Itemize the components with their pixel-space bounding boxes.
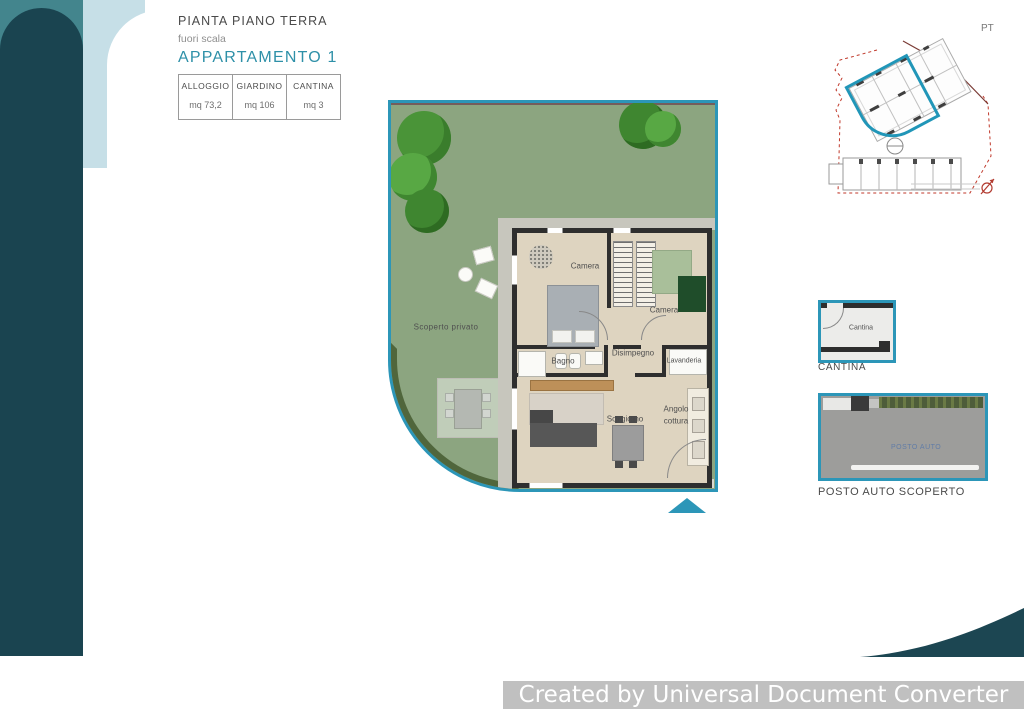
parking-line xyxy=(851,465,979,470)
cantina-door-swing xyxy=(823,308,844,329)
patio-left xyxy=(498,218,512,489)
col-header: CANTINA xyxy=(287,81,340,91)
cantina-caption: CANTINA xyxy=(818,362,866,373)
sink xyxy=(585,351,603,365)
room-label-angolo-cottura-2: cottura xyxy=(664,417,688,426)
apartment-title: APPARTAMENTO 1 xyxy=(178,49,338,67)
door-swing xyxy=(641,315,666,340)
hedge-strip xyxy=(879,397,983,408)
plan-top-boundary-line xyxy=(391,103,715,105)
cooktop xyxy=(692,397,705,411)
site-key-plan: PT xyxy=(815,8,1015,203)
interior-wall xyxy=(607,233,611,308)
window xyxy=(512,255,517,285)
main-floor-plan: Scoperto privato xyxy=(388,100,718,492)
lounge-chair xyxy=(472,246,494,265)
wardrobe xyxy=(613,241,633,307)
entry-door-swing xyxy=(667,439,706,478)
window xyxy=(547,228,563,233)
shower xyxy=(518,351,546,377)
cantina-plan: Cantina xyxy=(818,300,896,363)
table-col-giardino: GIARDINO mq 106 xyxy=(233,75,287,119)
window xyxy=(613,228,631,233)
north-compass-icon xyxy=(981,179,994,194)
room-label-camera-1: Camera xyxy=(571,262,599,271)
room-label-angolo-cottura-1: Angolo xyxy=(664,405,689,414)
area-summary-table: ALLOGGIO mq 73,2 GIARDINO mq 106 CANTINA… xyxy=(178,74,341,120)
cantina-wall xyxy=(821,347,887,352)
watermark-banner: Created by Universal Document Converter xyxy=(503,681,1024,709)
brochure-page: PIANTA PIANO TERRA fuori scala APPARTAME… xyxy=(0,0,1024,724)
room-label-soggiorno: Soggiorno xyxy=(607,415,643,424)
interior-wall xyxy=(635,373,665,377)
parking-caption: POSTO AUTO SCOPERTO xyxy=(818,486,965,498)
brand-bottom-swoosh xyxy=(800,598,1024,658)
round-rug xyxy=(529,245,553,269)
col-value: mq 3 xyxy=(287,100,340,110)
table-col-cantina: CANTINA mq 3 xyxy=(287,75,340,119)
curb xyxy=(869,399,879,408)
dining-chair xyxy=(629,461,637,468)
room-label-camera-2: Camera xyxy=(650,306,678,315)
dining-chair xyxy=(615,461,623,468)
garden-side-table xyxy=(458,267,473,282)
interior-wall xyxy=(662,345,666,377)
floor-tag: PT xyxy=(981,23,994,34)
entrance-arrow-icon xyxy=(668,498,706,513)
lounge-chair xyxy=(475,278,499,300)
dark-block xyxy=(851,396,869,411)
dining-table xyxy=(612,425,644,461)
brand-left-dark-column xyxy=(0,8,83,656)
parking-stencil-text: POSTO AUTO xyxy=(891,444,941,451)
col-header: GIARDINO xyxy=(233,81,286,91)
sofa xyxy=(530,423,597,447)
garden-label: Scoperto privato xyxy=(414,323,479,332)
tree xyxy=(405,189,449,233)
window xyxy=(529,483,563,488)
kitchen-sink xyxy=(692,419,705,433)
table-col-alloggio: ALLOGGIO mq 73,2 xyxy=(179,75,233,119)
single-bed xyxy=(678,276,706,312)
apartment-outline: Camera Camera Bagno Disimpegno Lavanderi… xyxy=(512,228,712,488)
window xyxy=(512,388,517,430)
interior-wall xyxy=(604,345,608,377)
door-swing xyxy=(579,311,608,340)
tree xyxy=(645,111,681,147)
page-title: PIANTA PIANO TERRA xyxy=(178,14,328,28)
scale-note: fuori scala xyxy=(178,33,226,45)
cantina-room-label: Cantina xyxy=(849,325,873,332)
room-label-bagno: Bagno xyxy=(551,357,574,366)
pillow xyxy=(552,330,572,343)
parking-plan: POSTO AUTO xyxy=(818,393,988,481)
room-label-lavanderia: Lavanderia xyxy=(667,358,702,365)
room-label-disimpegno: Disimpegno xyxy=(612,349,654,358)
cantina-wall xyxy=(879,341,890,352)
col-header: ALLOGGIO xyxy=(179,81,232,91)
col-value: mq 73,2 xyxy=(179,100,232,110)
col-value: mq 106 xyxy=(233,100,286,110)
sidewalk xyxy=(823,398,851,410)
cantina-wall xyxy=(843,303,893,308)
tv-sideboard xyxy=(530,380,614,391)
